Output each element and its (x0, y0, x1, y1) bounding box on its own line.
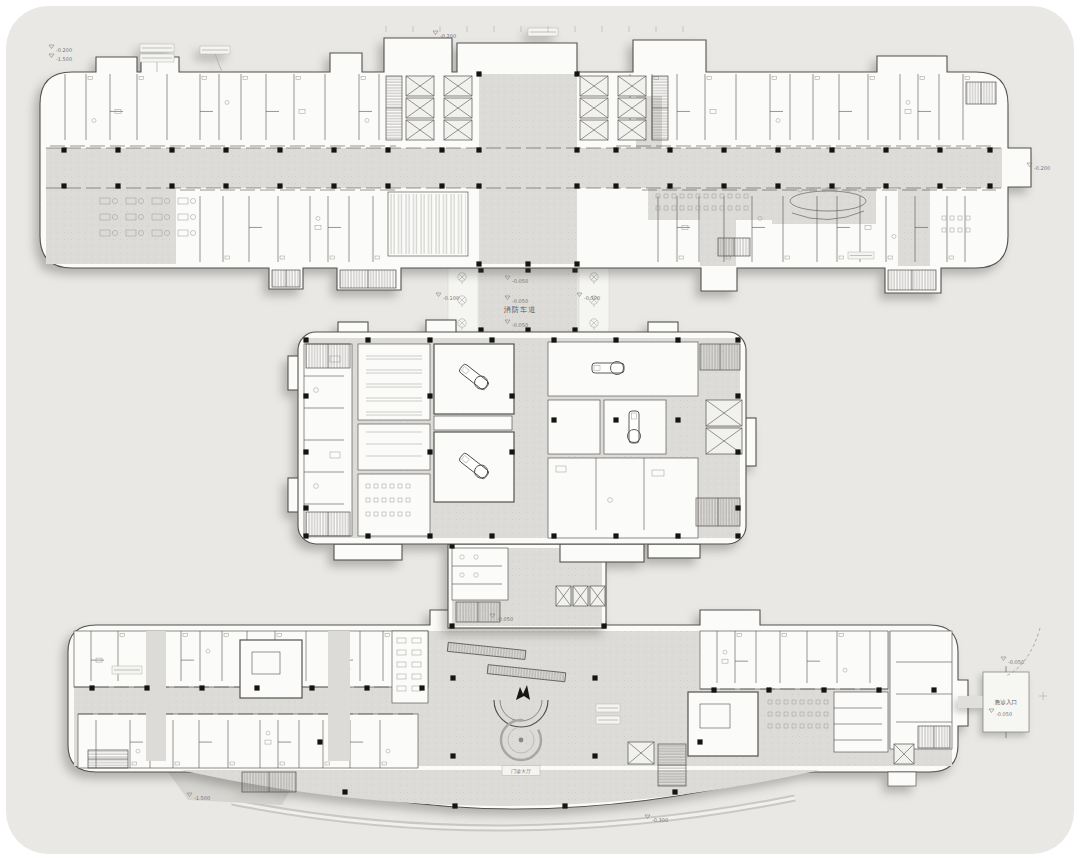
elevation-marker-text: -0.100 (443, 295, 459, 301)
column-marker (476, 183, 481, 188)
column-marker (574, 261, 579, 266)
column-marker (277, 147, 282, 152)
column-marker (169, 183, 174, 188)
column-marker (365, 533, 370, 538)
column-marker (509, 393, 514, 398)
column-marker (667, 147, 672, 152)
column-marker (551, 533, 556, 538)
room-zone (358, 474, 430, 536)
column-marker (476, 147, 481, 152)
emergency-entrance-label: 急诊入口 (994, 699, 1017, 706)
column-marker (199, 685, 204, 690)
imaging-machine-icon (592, 362, 624, 375)
elevation-marker-text: -0.050 (996, 711, 1012, 717)
column-marker (562, 803, 567, 808)
column-marker (735, 533, 740, 538)
floor-plan-page: 消防车道 急诊入口 门诊大厅 -0.200-1.500-0.200-0.200-… (0, 0, 1080, 860)
elevation-marker-text: -0.200 (1034, 165, 1050, 171)
elevation-marker-text: -1.500 (194, 795, 210, 801)
elevation-marker-text: -1.500 (56, 56, 72, 62)
column-marker (613, 533, 618, 538)
large-room (688, 692, 758, 756)
room-zone (834, 692, 888, 752)
column-marker (309, 685, 314, 690)
column-marker (735, 505, 740, 510)
exterior-pod (888, 772, 916, 786)
elevation-marker-text: -0.050 (512, 278, 528, 284)
column-marker (987, 183, 992, 188)
column-marker (427, 337, 432, 342)
column-marker (317, 739, 322, 744)
column-marker (223, 147, 228, 152)
column-marker (452, 803, 457, 808)
column-marker (427, 449, 432, 454)
column-marker (254, 685, 259, 690)
column-marker (342, 789, 347, 794)
column-marker (551, 417, 556, 422)
column-marker (735, 337, 740, 342)
column-marker (61, 147, 66, 152)
column-marker (449, 623, 454, 628)
column-marker (675, 533, 680, 538)
column-marker (365, 337, 370, 342)
block-pod (648, 544, 700, 558)
control-room (434, 416, 512, 430)
column-marker (613, 147, 618, 152)
column-marker (721, 183, 726, 188)
column-marker (735, 449, 740, 454)
column-marker (574, 183, 579, 188)
column-marker (303, 337, 308, 342)
column-marker (829, 147, 834, 152)
column-marker (303, 449, 308, 454)
column-marker (937, 147, 942, 152)
column-marker (675, 417, 680, 422)
corridor (146, 631, 166, 761)
column-marker (821, 687, 826, 692)
column-marker (144, 685, 149, 690)
column-marker (364, 685, 369, 690)
column-marker (476, 71, 481, 76)
column-marker (987, 147, 992, 152)
elevation-marker-text: -0.050 (512, 298, 528, 304)
elevation-marker-text: -0.050 (512, 322, 528, 328)
block-pod (334, 544, 402, 560)
column-marker (169, 147, 174, 152)
column-marker (667, 183, 672, 188)
block-pod (560, 544, 644, 562)
column-marker (574, 147, 579, 152)
column-marker (937, 183, 942, 188)
canopy-link (958, 696, 983, 708)
column-marker (721, 147, 726, 152)
elevation-marker-text: -0.200 (440, 33, 456, 39)
floor-texture (46, 188, 176, 264)
floor-plan-canvas: 消防车道 急诊入口 门诊大厅 -0.200-1.500-0.200-0.200-… (0, 0, 1080, 860)
column-marker (427, 533, 432, 538)
column-marker (223, 183, 228, 188)
elevation-marker-text: -0.300 (584, 295, 600, 301)
imaging-machine-icon (628, 411, 641, 443)
column-marker (711, 687, 716, 692)
column-marker (675, 337, 680, 342)
floor-texture (479, 74, 577, 264)
column-marker (775, 147, 780, 152)
column-marker (876, 687, 881, 692)
column-marker (613, 337, 618, 342)
column-marker (601, 623, 606, 628)
column-marker (509, 449, 514, 454)
column-marker (450, 675, 455, 680)
column-marker (385, 147, 390, 152)
column-marker (115, 147, 120, 152)
column-marker (385, 183, 390, 188)
spiral-center (519, 738, 524, 743)
column-marker (775, 183, 780, 188)
column-marker (450, 753, 455, 758)
column-marker (613, 183, 618, 188)
elevation-marker-text: -0.300 (652, 817, 668, 823)
lobby-label: 门诊大厅 (511, 768, 531, 774)
column-marker (592, 753, 597, 758)
floor-texture (898, 188, 930, 266)
room-zone (548, 458, 698, 538)
elevation-marker-text: -0.050 (497, 616, 513, 622)
column-marker (489, 533, 494, 538)
column-marker (829, 183, 834, 188)
column-marker (613, 417, 618, 422)
elevation-marker-text: -0.050 (1008, 659, 1024, 665)
column-marker (551, 337, 556, 342)
large-room (240, 640, 302, 698)
column-marker (525, 261, 530, 266)
column-marker (89, 685, 94, 690)
machine-body (592, 363, 624, 373)
shelving-lines (390, 194, 466, 254)
column-marker (303, 505, 308, 510)
column-marker (672, 789, 677, 794)
column-marker (277, 183, 282, 188)
column-marker (931, 687, 936, 692)
column-marker (489, 337, 494, 342)
column-marker (697, 739, 702, 744)
column-marker (427, 393, 432, 398)
column-marker (419, 685, 424, 690)
column-marker (115, 183, 120, 188)
column-marker (592, 675, 597, 680)
room-zone (548, 400, 600, 454)
corridor (328, 631, 350, 761)
column-marker (61, 183, 66, 188)
column-marker (331, 147, 336, 152)
column-marker (331, 183, 336, 188)
lab-room (358, 344, 430, 420)
column-marker (883, 183, 888, 188)
elevation-marker-text: -0.200 (56, 47, 72, 53)
column-marker (735, 393, 740, 398)
machine-body (629, 411, 639, 443)
room-zone (78, 714, 418, 768)
column-marker (439, 147, 444, 152)
column-marker (883, 147, 888, 152)
column-marker (303, 533, 308, 538)
column-marker (476, 261, 481, 266)
column-marker (574, 71, 579, 76)
lab-room (358, 424, 430, 470)
column-marker (303, 393, 308, 398)
column-marker (766, 687, 771, 692)
fire-lane-label: 消防车道 (504, 305, 537, 314)
column-marker (439, 183, 444, 188)
